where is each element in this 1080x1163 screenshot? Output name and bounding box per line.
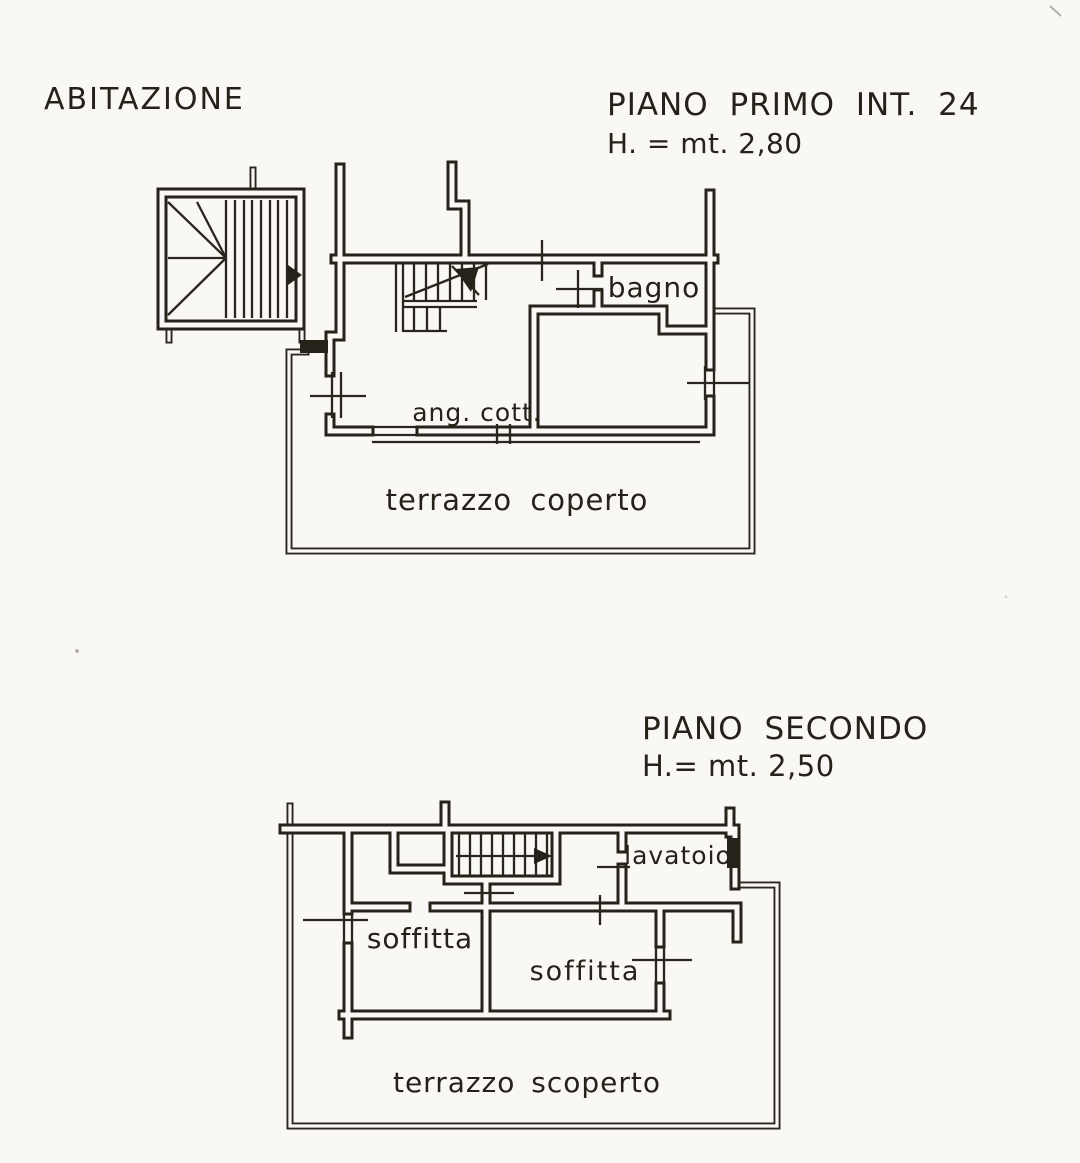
scan-mark bbox=[1050, 6, 1061, 16]
internal-stair bbox=[396, 262, 488, 332]
floor1-height-note: H. = mt. 2,80 bbox=[607, 127, 803, 160]
stairwell bbox=[168, 200, 302, 318]
room-label-covered-terrace: terrazzo coperto bbox=[386, 483, 649, 517]
scanned-floor-plan-document: ABITAZIONE PIANO PRIMO INT. 24 H. = mt. … bbox=[0, 0, 1080, 1163]
floor2-plan: lavatoio soffitta soffitta terrazzo scop… bbox=[284, 806, 777, 1126]
entry-threshold bbox=[300, 340, 328, 353]
scan-speck bbox=[1005, 596, 1008, 599]
floor2-stair bbox=[456, 833, 552, 876]
floor2-stair-arrow-icon bbox=[534, 848, 552, 864]
property-type-label: ABITAZIONE bbox=[44, 82, 245, 117]
room-label-kitchenette: ang. cott. bbox=[412, 398, 542, 427]
floor2-title: PIANO SECONDO bbox=[642, 711, 928, 747]
scan-speck bbox=[75, 649, 79, 653]
stairwell-direction-lines bbox=[168, 202, 226, 315]
floor1-title: PIANO PRIMO INT. 24 bbox=[607, 87, 980, 123]
room-label-attic-left: soffitta bbox=[367, 922, 473, 955]
floor-plan-drawing: ABITAZIONE PIANO PRIMO INT. 24 H. = mt. … bbox=[0, 0, 1080, 1163]
room-label-laundry: lavatoio bbox=[624, 841, 732, 870]
floor2-stair-treads bbox=[456, 833, 547, 876]
room-label-bathroom: bagno bbox=[608, 271, 701, 304]
floor1-plan: bagno ang. cott. terrazzo coperto bbox=[162, 166, 752, 551]
stairwell-treads bbox=[226, 200, 287, 318]
floor2-height-note: H.= mt. 2,50 bbox=[642, 749, 835, 783]
room-label-attic-center: soffitta bbox=[530, 956, 641, 987]
room-label-open-terrace: terrazzo scoperto bbox=[393, 1066, 661, 1099]
internal-stair-arrow-icon bbox=[455, 267, 479, 292]
